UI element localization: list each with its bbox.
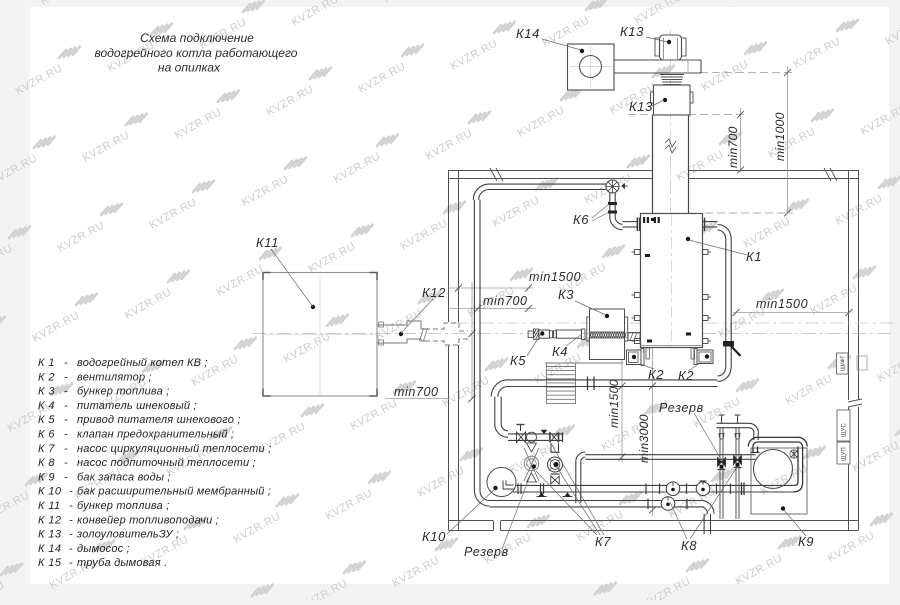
svg-text:Резерв: Резерв [464, 545, 509, 559]
svg-text:К6: К6 [573, 212, 589, 227]
svg-text:-: - [64, 371, 68, 383]
svg-text:К9: К9 [798, 534, 814, 549]
svg-text:К13: К13 [629, 99, 653, 114]
svg-text:клапан предохранительный ;: клапан предохранительный ; [77, 429, 234, 441]
svg-text:-: - [69, 543, 73, 555]
svg-text:К 2: К 2 [38, 371, 55, 383]
svg-text:К11: К11 [256, 235, 279, 250]
svg-text:-: - [69, 529, 73, 541]
svg-text:-: - [64, 414, 68, 426]
svg-text:бункер топлива ;: бункер топлива ; [77, 386, 169, 398]
svg-text:водогрейный котел КВ ;: водогрейный котел КВ ; [77, 357, 208, 369]
svg-text:труба дымовая .: труба дымовая . [77, 557, 167, 569]
svg-text:конвейер топливоподачи ;: конвейер топливоподачи ; [77, 514, 219, 526]
svg-text:К2: К2 [678, 368, 694, 383]
svg-text:питатель шнековый ;: питатель шнековый ; [77, 400, 197, 412]
svg-text:min1500: min1500 [756, 297, 808, 311]
svg-text:ЩМФТ: ЩМФТ [841, 356, 847, 371]
svg-text:К 13: К 13 [38, 529, 62, 541]
svg-text:К4: К4 [552, 344, 568, 359]
svg-text:-: - [64, 457, 68, 469]
svg-text:К8: К8 [681, 538, 697, 553]
svg-text:К5: К5 [510, 353, 526, 368]
svg-text:min3000: min3000 [637, 414, 651, 463]
svg-text:на опилках: на опилках [158, 61, 221, 75]
svg-text:min700: min700 [394, 385, 439, 399]
svg-text:бункер топлива ;: бункер топлива ; [77, 500, 169, 512]
svg-text:К3: К3 [558, 287, 574, 302]
svg-text:-: - [69, 500, 73, 512]
svg-text:вентилятор ;: вентилятор ; [77, 371, 152, 383]
svg-text:ЩУС: ЩУС [842, 423, 848, 437]
svg-text:К14: К14 [516, 26, 540, 41]
svg-text:-: - [69, 514, 73, 526]
svg-text:min700: min700 [726, 126, 740, 168]
svg-text:-: - [64, 400, 68, 412]
svg-text:-: - [64, 429, 68, 441]
svg-text:бак запаса воды ;: бак запаса воды ; [77, 471, 171, 483]
svg-text:К 11: К 11 [38, 500, 61, 512]
svg-text:К1: К1 [746, 249, 762, 264]
svg-text:Резерв: Резерв [659, 401, 704, 415]
svg-text:бак расширительный мембранный: бак расширительный мембранный ; [77, 486, 271, 498]
svg-text:К12: К12 [422, 285, 446, 300]
svg-text:насос циркуляционный теплосети: насос циркуляционный теплосети ; [77, 443, 271, 455]
svg-text:К 15: К 15 [38, 557, 62, 569]
svg-text:К 4: К 4 [38, 400, 55, 412]
svg-text:К7: К7 [595, 534, 611, 549]
svg-text:К 14: К 14 [38, 543, 61, 555]
svg-text:привод питателя шнекового ;: привод питателя шнекового ; [77, 414, 241, 426]
svg-text:-: - [64, 443, 68, 455]
svg-text:min1000: min1000 [773, 112, 787, 161]
svg-text:К 12: К 12 [38, 514, 61, 526]
svg-text:Схема подключение: Схема подключение [140, 31, 254, 45]
svg-text:-: - [64, 471, 68, 483]
svg-text:min1500: min1500 [529, 270, 581, 284]
svg-text:К13: К13 [620, 24, 644, 39]
svg-text:насос подпиточный теплосети ;: насос подпиточный теплосети ; [77, 457, 256, 469]
svg-text:К 9: К 9 [38, 471, 55, 483]
svg-text:К 7: К 7 [38, 443, 55, 455]
svg-text:водогрейного котла работающего: водогрейного котла работающего [94, 46, 297, 60]
svg-text:ЩУП: ЩУП [842, 447, 848, 461]
svg-text:-: - [64, 357, 68, 369]
svg-text:-: - [69, 486, 73, 498]
svg-text:дымосос ;: дымосос ; [77, 543, 130, 555]
svg-text:К 6: К 6 [38, 429, 55, 441]
svg-text:-: - [64, 386, 68, 398]
svg-text:К 10: К 10 [38, 486, 62, 498]
svg-text:К 8: К 8 [38, 457, 55, 469]
svg-text:К 3: К 3 [38, 386, 55, 398]
svg-text:золоуловительЗУ ;: золоуловительЗУ ; [76, 529, 179, 541]
svg-text:-: - [69, 557, 73, 569]
svg-text:К10: К10 [422, 529, 446, 544]
svg-text:min700: min700 [483, 294, 528, 308]
svg-text:К 5: К 5 [38, 414, 55, 426]
svg-text:К 1: К 1 [38, 357, 55, 369]
